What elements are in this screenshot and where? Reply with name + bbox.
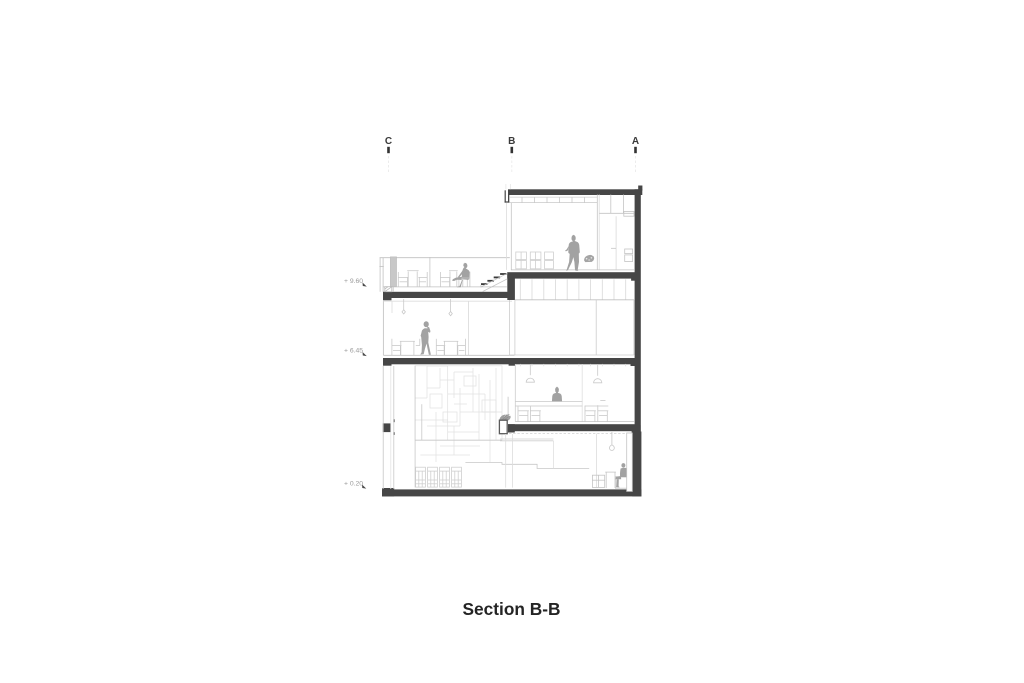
svg-text:+ 0.20: + 0.20 bbox=[344, 481, 363, 488]
svg-text:B: B bbox=[508, 136, 515, 147]
svg-text:C: C bbox=[385, 136, 392, 147]
svg-text:Section B-B: Section B-B bbox=[463, 599, 561, 619]
svg-text:+ 9.60: + 9.60 bbox=[344, 278, 363, 285]
svg-text:+ 6.45: + 6.45 bbox=[344, 348, 363, 355]
svg-text:A: A bbox=[632, 136, 639, 147]
